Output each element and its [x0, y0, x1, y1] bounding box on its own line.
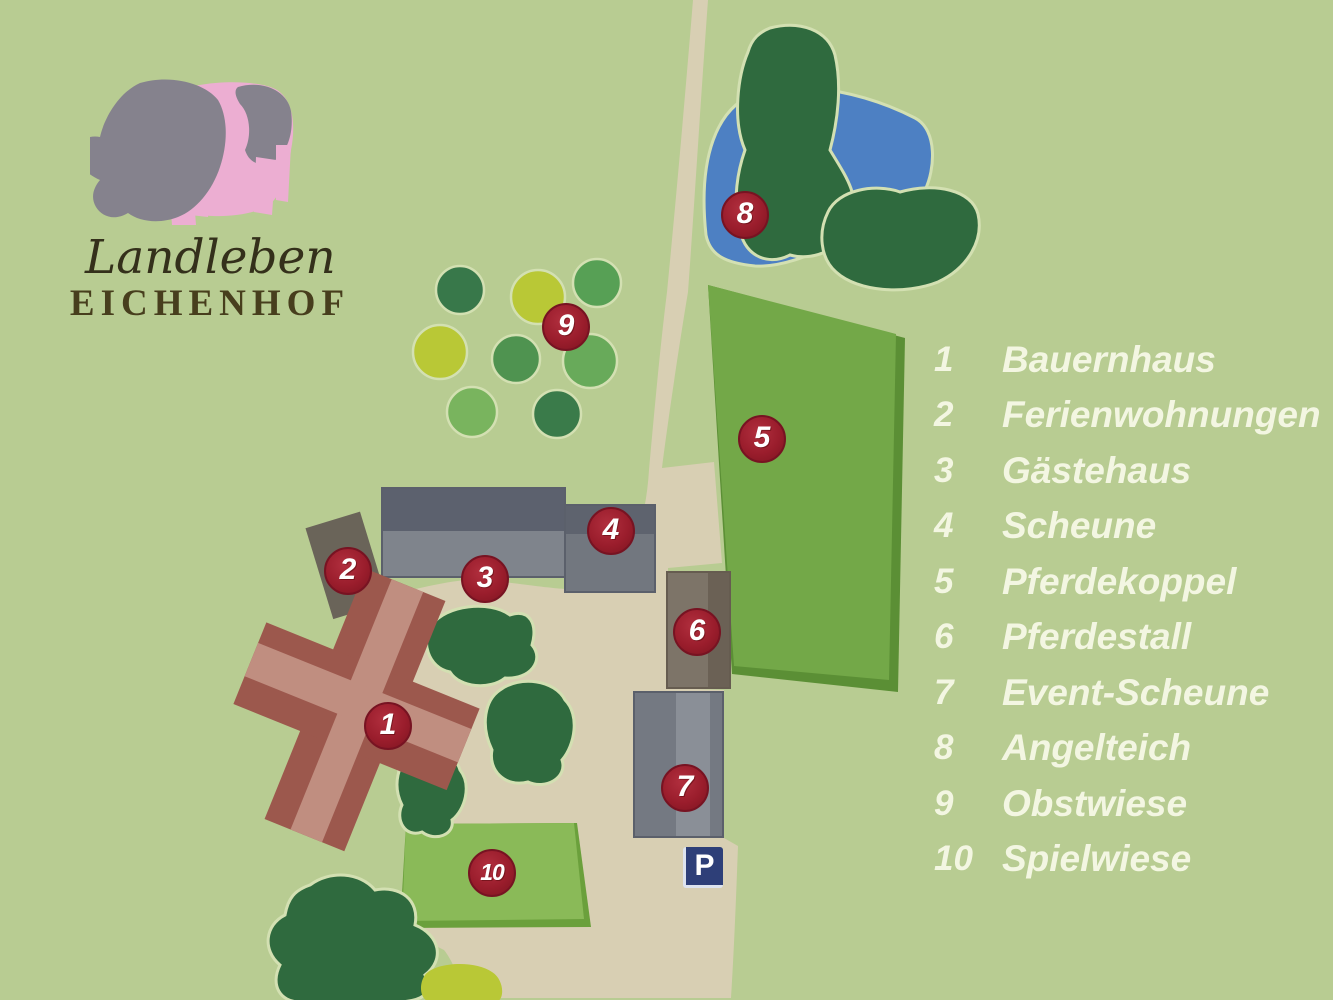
legend-num: 10	[934, 839, 990, 879]
legend-label: Angelteich	[1002, 727, 1191, 769]
legend-row: 10 Spielwiese	[934, 832, 1321, 888]
legend-row: 4 Scheune	[934, 499, 1321, 555]
logo-script-text: Landleben	[85, 230, 335, 285]
logo-caps-text: EICHENHOF	[30, 282, 390, 325]
legend-label: Gästehaus	[1002, 450, 1191, 492]
paddock-field	[708, 285, 905, 692]
map-marker-9: 9	[542, 303, 590, 351]
legend-label: Ferienwohnungen	[1002, 394, 1321, 436]
orchard-trees	[413, 259, 621, 438]
legend-row: 6 Pferdestall	[934, 610, 1321, 666]
legend: 1 Bauernhaus 2 Ferienwohnungen 3 Gästeha…	[934, 332, 1321, 887]
tree-icon	[822, 188, 979, 290]
legend-label: Scheune	[1002, 505, 1156, 547]
legend-label: Spielwiese	[1002, 838, 1191, 880]
legend-num: 5	[934, 562, 990, 602]
legend-num: 9	[934, 784, 990, 824]
map-marker-8: 8	[721, 191, 769, 239]
legend-label: Event-Scheune	[1002, 672, 1269, 714]
legend-num: 2	[934, 395, 990, 435]
map-marker-5: 5	[738, 415, 786, 463]
map-marker-4: 4	[587, 507, 635, 555]
legend-label: Obstwiese	[1002, 783, 1187, 825]
legend-label: Bauernhaus	[1002, 339, 1216, 381]
legend-num: 4	[934, 506, 990, 546]
legend-row: 1 Bauernhaus	[934, 332, 1321, 388]
legend-num: 1	[934, 340, 990, 380]
legend-num: 8	[934, 728, 990, 768]
pig-icon	[90, 70, 305, 235]
legend-num: 3	[934, 451, 990, 491]
map-marker-6: 6	[673, 608, 721, 656]
legend-row: 7 Event-Scheune	[934, 665, 1321, 721]
legend-row: 8 Angelteich	[934, 721, 1321, 777]
legend-num: 6	[934, 617, 990, 657]
legend-row: 9 Obstwiese	[934, 776, 1321, 832]
map-marker-10: 10	[468, 849, 516, 897]
map-marker-7: 7	[661, 764, 709, 812]
map-marker-2: 2	[324, 547, 372, 595]
site-plan: Landleben EICHENHOF 1 2 3 4 5 6 7 8 9 10…	[0, 0, 1333, 1000]
legend-label: Pferdekoppel	[1002, 561, 1236, 603]
legend-num: 7	[934, 673, 990, 713]
parking-sign: P	[683, 847, 723, 888]
map-marker-3: 3	[461, 555, 509, 603]
legend-row: 2 Ferienwohnungen	[934, 388, 1321, 444]
legend-row: 3 Gästehaus	[934, 443, 1321, 499]
legend-label: Pferdestall	[1002, 616, 1191, 658]
map-marker-1: 1	[364, 702, 412, 750]
legend-row: 5 Pferdekoppel	[934, 554, 1321, 610]
